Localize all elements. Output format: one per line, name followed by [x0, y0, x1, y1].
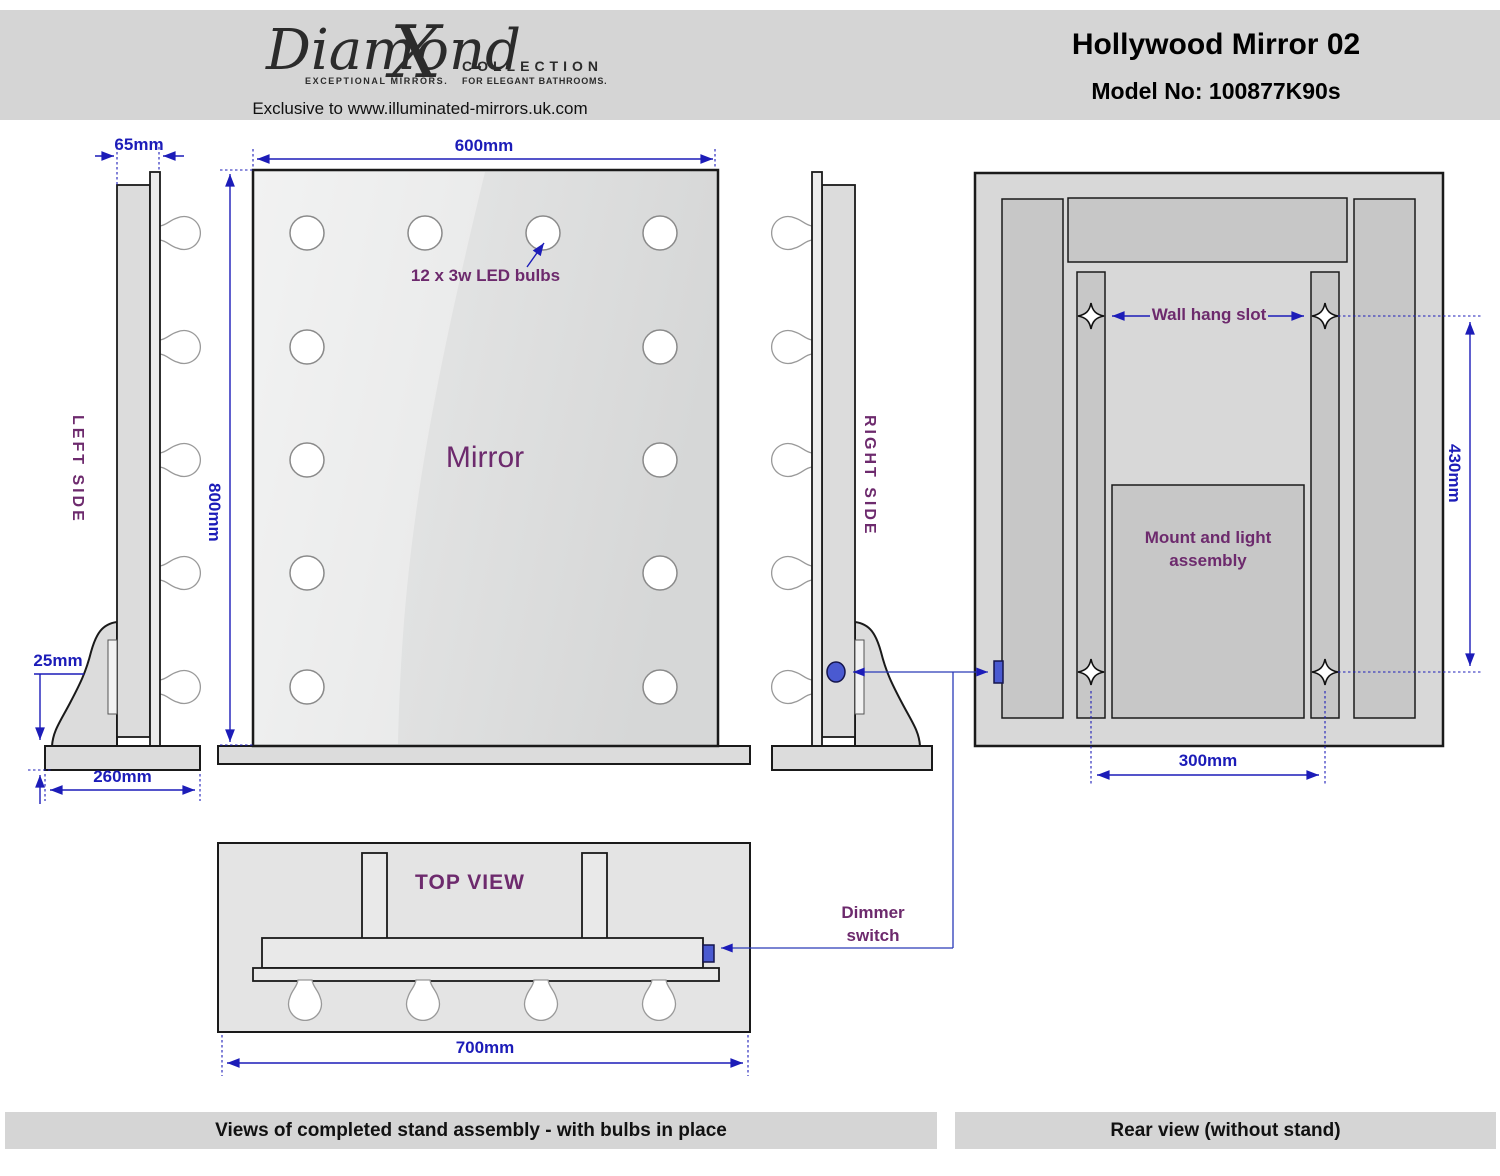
stand-upright	[362, 853, 387, 939]
mount-assembly-label: Mount and light assembly	[1133, 526, 1283, 572]
dimmer-switch-dot	[827, 662, 845, 682]
stand-upright	[582, 853, 607, 939]
base-plate	[772, 746, 932, 770]
dim-800mm: 800mm	[204, 442, 224, 582]
led-bulb	[160, 217, 200, 704]
brand-tagline-right: FOR ELEGANT BATHROOMS.	[462, 76, 607, 86]
rear-right-rail	[1311, 272, 1339, 718]
mirror-glass-side	[150, 172, 160, 748]
dim-700mm: 700mm	[385, 1038, 585, 1058]
mirror-body-side	[117, 185, 150, 737]
dimmer-switch-rear	[994, 661, 1003, 683]
mirror-body-side	[822, 185, 855, 737]
led-bulb	[772, 217, 812, 704]
right-side-label: RIGHT SIDE	[860, 415, 878, 537]
rear-left-panel	[1002, 199, 1063, 718]
mirror-glass-top	[253, 968, 719, 981]
mirror-glass-side	[812, 172, 822, 748]
dim-260mm: 260mm	[60, 767, 185, 787]
page-title: Hollywood Mirror 02	[1066, 28, 1366, 62]
brand-tagline-left: EXCEPTIONAL MIRRORS.	[305, 76, 448, 86]
left-side-label: LEFT SIDE	[68, 415, 86, 524]
mirror-label: Mirror	[385, 441, 585, 475]
rear-view	[975, 173, 1443, 746]
dim-65mm: 65mm	[96, 135, 182, 155]
dim-600mm: 600mm	[384, 136, 584, 156]
dim-300mm: 300mm	[1108, 751, 1308, 771]
stand-bracket	[52, 622, 117, 746]
technical-drawing	[0, 0, 1500, 1176]
drawing-sheet: Views of completed stand assembly - with…	[0, 0, 1500, 1176]
led-bulbs-note: 12 x 3w LED bulbs	[398, 266, 573, 286]
exclusive-line: Exclusive to www.illuminated-mirrors.uk.…	[250, 99, 590, 119]
right-side-view	[772, 172, 932, 770]
stand-bracket	[855, 622, 920, 746]
rear-right-panel	[1354, 199, 1415, 718]
dim-430mm: 430mm	[1444, 408, 1464, 538]
bracket-slot	[855, 640, 864, 714]
rear-left-rail	[1077, 272, 1105, 718]
mirror-body-top	[262, 938, 703, 968]
brand-collection: COLLECTION	[462, 58, 603, 74]
dimmer-switch-label: Dimmer switch	[828, 901, 918, 947]
model-number: Model No: 100877K90s	[1066, 78, 1366, 105]
dimmer-switch-top	[703, 945, 714, 962]
mount-assembly-box	[1112, 485, 1304, 718]
wall-hang-slot-label: Wall hang slot	[1134, 305, 1284, 325]
dim-25mm: 25mm	[30, 651, 86, 671]
rear-top-panel	[1068, 198, 1347, 262]
base-plate	[218, 746, 750, 764]
top-view-label: TOP VIEW	[390, 871, 550, 895]
bracket-slot	[108, 640, 117, 714]
